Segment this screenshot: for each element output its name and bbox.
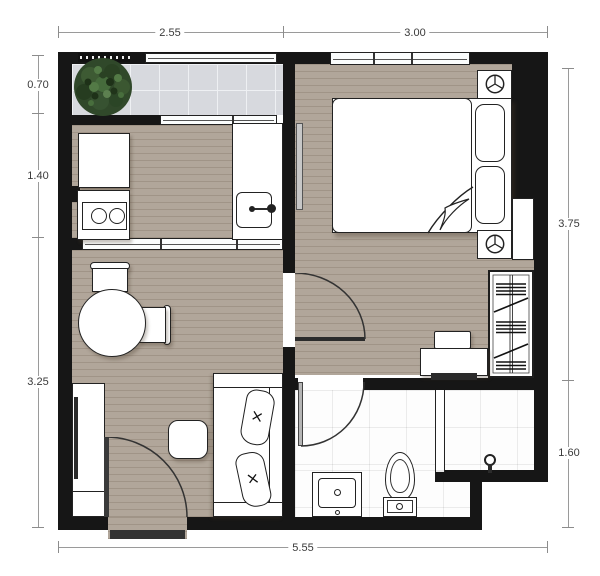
bedroom-window-glass: [330, 52, 470, 65]
dressing-table-mat: [431, 373, 477, 380]
wall-notch-stub: [470, 482, 482, 517]
dimension-line-top: [58, 32, 548, 33]
dimension-tick: [32, 527, 44, 528]
wall-shaft: [512, 52, 534, 200]
dimension-label-top-1: 2.55: [155, 27, 184, 39]
counter-window-divider: [236, 239, 238, 249]
bedside-lamp-icon: [484, 73, 506, 95]
counter-window-divider: [160, 239, 162, 249]
dining-table: [78, 289, 146, 357]
sofa-armrest: [214, 374, 282, 388]
entrance-doormat: [110, 530, 185, 539]
bedside-lamp-icon: [484, 233, 506, 255]
faucet-knob: [267, 204, 276, 213]
blanket-fold: [424, 184, 474, 234]
dimension-line-left: [38, 55, 39, 527]
dimension-tick: [58, 541, 59, 553]
dimension-tick: [562, 68, 574, 69]
wall-bottom-left: [58, 517, 108, 530]
dimension-tick: [562, 527, 574, 528]
wall-left: [58, 52, 72, 530]
wardrobe: [488, 270, 534, 378]
wall-bottom-right: [187, 517, 482, 530]
stove-burner-icon: [109, 208, 125, 224]
dimension-label-right-2: 1.60: [554, 447, 583, 459]
dimension-label-left-2: 1.40: [23, 170, 52, 182]
bed-pillow: [475, 166, 505, 224]
dressing-stool: [434, 331, 471, 349]
shower-valve-stem: [488, 464, 492, 473]
dimension-tick: [58, 26, 59, 38]
balcony-top-window-glass: [145, 53, 277, 63]
dimension-tick: [32, 113, 44, 114]
dimension-tick: [547, 541, 548, 553]
dimension-tick: [562, 380, 574, 381]
bedroom-door-swing-arc: [295, 273, 367, 339]
shower-glass-partition: [435, 390, 445, 472]
tv-icon: [74, 397, 78, 479]
floor-plan: 2.55 3.00 0.70 1.40 3.25 3.75 1.60 5.55: [0, 0, 600, 576]
wall-right: [534, 52, 548, 482]
dimension-tick: [283, 26, 284, 38]
stove-burner-icon: [91, 208, 107, 224]
dimension-tick: [32, 237, 44, 238]
dressing-table: [420, 348, 488, 376]
toilet-flush-icon: [396, 503, 403, 510]
sink-drain-icon: [334, 489, 341, 496]
fridge: [78, 133, 130, 188]
wall-bedroom-bathroom-left: [283, 378, 298, 390]
sliding-panel: [296, 123, 303, 210]
vanity-knob-icon: [335, 510, 340, 515]
bed-pillow: [475, 104, 505, 162]
dimension-label-left-3: 3.25: [23, 376, 52, 388]
dimension-label-top-2: 3.00: [400, 27, 429, 39]
entrance-door-swing-arc: [106, 437, 189, 518]
wall-niche-shelf: [512, 198, 534, 260]
wall-kitchen-bedroom: [283, 115, 295, 273]
dimension-label-left-1: 0.70: [23, 79, 52, 91]
dimension-label-right-1: 3.75: [554, 218, 583, 230]
bathroom-door-swing-arc: [301, 382, 365, 447]
plant-icon: [70, 54, 136, 120]
dimension-label-bottom: 5.55: [288, 542, 317, 554]
dimension-tick: [547, 26, 548, 38]
wall-living-bathroom: [283, 347, 295, 517]
faucet-spout: [249, 206, 255, 212]
dimension-tick: [32, 55, 44, 56]
toilet-bowl-inner: [390, 459, 410, 493]
